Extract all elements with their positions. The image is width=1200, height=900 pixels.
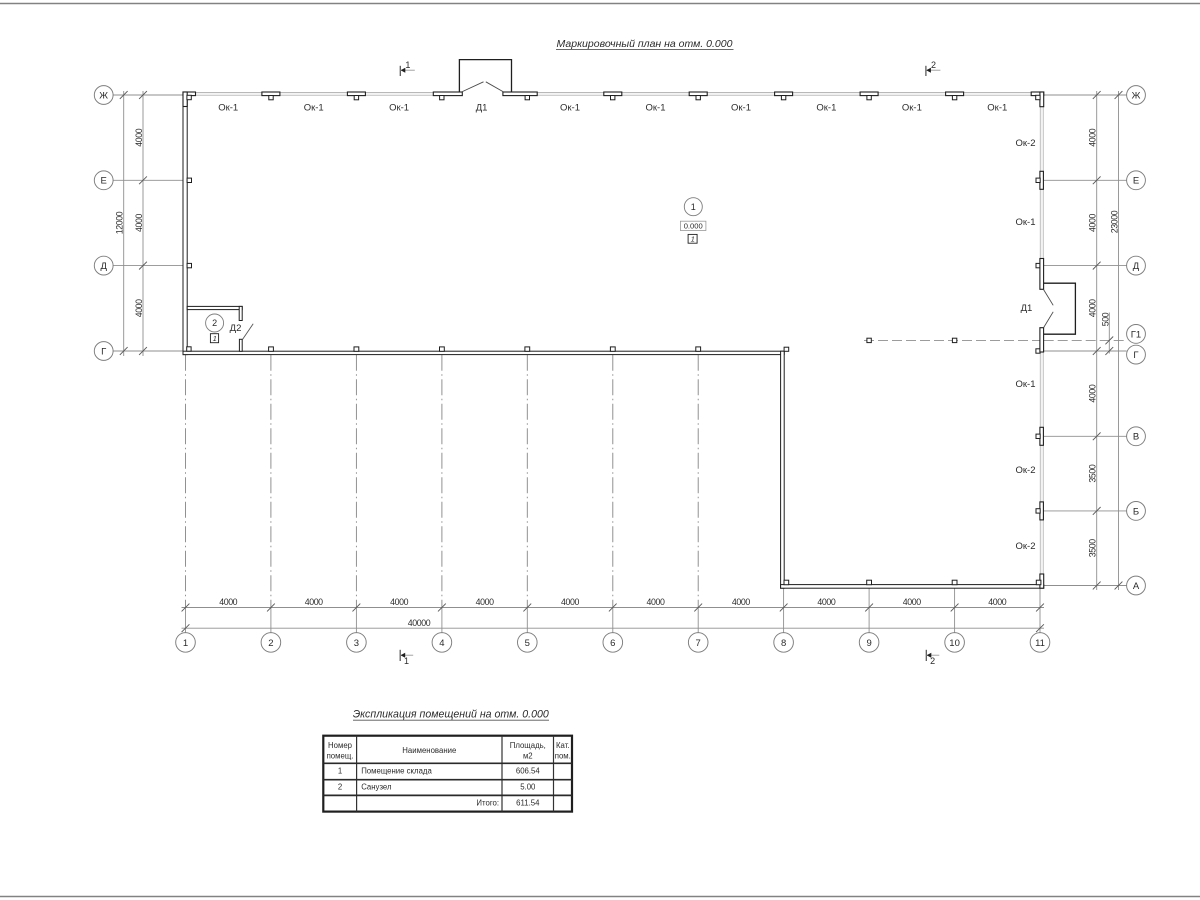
svg-text:1: 1 — [691, 202, 696, 212]
svg-text:Ок-1: Ок-1 — [560, 102, 580, 113]
svg-text:Ок-1: Ок-1 — [816, 102, 836, 113]
svg-text:5.00: 5.00 — [520, 782, 536, 791]
svg-text:Маркировочный план на отм. 0.0: Маркировочный план на отм. 0.000 — [557, 38, 733, 50]
svg-text:Д1: Д1 — [476, 102, 488, 113]
svg-text:606.54: 606.54 — [516, 767, 541, 776]
svg-text:Б: Б — [1133, 506, 1139, 517]
svg-text:Помещение склада: Помещение склада — [361, 767, 432, 776]
svg-text:Номер: Номер — [328, 741, 353, 750]
svg-text:1: 1 — [404, 656, 409, 666]
svg-text:м2: м2 — [523, 751, 533, 760]
svg-text:4000: 4000 — [647, 597, 665, 607]
svg-text:4000: 4000 — [1088, 384, 1098, 402]
svg-text:4000: 4000 — [134, 128, 144, 146]
svg-text:7: 7 — [696, 638, 701, 649]
svg-text:В: В — [1133, 432, 1139, 443]
svg-text:Ж: Ж — [99, 90, 108, 101]
svg-text:2: 2 — [212, 318, 217, 328]
svg-text:4000: 4000 — [134, 214, 144, 232]
svg-text:Площадь,: Площадь, — [510, 741, 546, 750]
svg-text:1: 1 — [338, 767, 342, 776]
svg-text:8: 8 — [781, 638, 786, 649]
svg-text:12000: 12000 — [115, 211, 125, 234]
svg-text:2: 2 — [268, 638, 273, 649]
svg-text:Г1: Г1 — [1131, 329, 1141, 340]
svg-text:4000: 4000 — [1088, 299, 1098, 317]
svg-text:Ок-1: Ок-1 — [1016, 217, 1036, 228]
svg-text:1: 1 — [183, 638, 188, 649]
svg-text:Наименование: Наименование — [402, 746, 456, 755]
svg-text:Е: Е — [101, 176, 107, 187]
svg-text:Г: Г — [101, 346, 106, 357]
svg-text:4000: 4000 — [305, 597, 323, 607]
svg-text:3500: 3500 — [1088, 464, 1098, 482]
svg-text:2: 2 — [931, 60, 936, 70]
svg-text:помещ.: помещ. — [327, 751, 354, 760]
svg-text:9: 9 — [866, 638, 871, 649]
svg-text:23000: 23000 — [1110, 210, 1120, 233]
svg-text:1: 1 — [691, 234, 695, 243]
svg-text:Ок-1: Ок-1 — [987, 102, 1007, 113]
svg-text:пом.: пом. — [555, 751, 571, 760]
svg-text:6: 6 — [610, 638, 615, 649]
svg-text:4000: 4000 — [732, 597, 750, 607]
svg-text:40000: 40000 — [408, 618, 431, 628]
svg-text:4000: 4000 — [219, 597, 237, 607]
svg-text:3: 3 — [354, 638, 359, 649]
svg-text:Ок-1: Ок-1 — [646, 102, 666, 113]
svg-text:4: 4 — [439, 638, 444, 649]
svg-text:11: 11 — [1035, 638, 1045, 649]
svg-text:Ок-2: Ок-2 — [1016, 465, 1036, 476]
svg-text:1: 1 — [405, 60, 410, 70]
svg-text:Ок-1: Ок-1 — [304, 102, 324, 113]
svg-text:Д2: Д2 — [230, 323, 242, 334]
svg-text:4000: 4000 — [476, 597, 494, 607]
svg-text:Ок-1: Ок-1 — [389, 102, 409, 113]
svg-text:611.54: 611.54 — [516, 798, 540, 807]
svg-text:Ок-1: Ок-1 — [731, 102, 751, 113]
svg-text:Ок-2: Ок-2 — [1016, 138, 1036, 149]
svg-text:4000: 4000 — [1088, 128, 1098, 146]
svg-text:Д: Д — [1133, 261, 1140, 272]
svg-text:3500: 3500 — [1088, 539, 1098, 557]
svg-text:Кат.: Кат. — [556, 741, 570, 750]
svg-text:Ок-1: Ок-1 — [902, 102, 922, 113]
svg-text:Д: Д — [100, 261, 107, 272]
svg-text:4000: 4000 — [988, 597, 1006, 607]
svg-text:1: 1 — [213, 334, 217, 343]
svg-text:4000: 4000 — [390, 597, 408, 607]
svg-text:Итого:: Итого: — [476, 798, 499, 807]
svg-text:4000: 4000 — [1088, 214, 1098, 232]
svg-text:Ж: Ж — [1132, 90, 1141, 101]
svg-text:4000: 4000 — [817, 597, 835, 607]
svg-text:Экспликация помещений на отм.: Экспликация помещений на отм. 0.000 — [353, 709, 549, 721]
svg-text:4000: 4000 — [561, 597, 579, 607]
svg-text:Ок-2: Ок-2 — [1016, 541, 1036, 552]
svg-text:Ок-1: Ок-1 — [218, 102, 238, 113]
svg-text:2: 2 — [338, 782, 342, 791]
svg-text:0.000: 0.000 — [684, 222, 703, 231]
svg-text:Е: Е — [1133, 176, 1139, 187]
svg-text:10: 10 — [949, 638, 960, 649]
svg-text:2: 2 — [930, 656, 935, 666]
svg-text:А: А — [1133, 581, 1140, 592]
svg-text:4000: 4000 — [903, 597, 921, 607]
svg-text:Г: Г — [1133, 350, 1138, 361]
svg-text:5: 5 — [525, 638, 530, 649]
svg-text:Д1: Д1 — [1021, 303, 1033, 314]
svg-text:4000: 4000 — [134, 299, 144, 317]
svg-text:Ок-1: Ок-1 — [1016, 379, 1036, 390]
svg-text:Санузел: Санузел — [361, 782, 392, 791]
svg-text:500: 500 — [1100, 312, 1110, 326]
